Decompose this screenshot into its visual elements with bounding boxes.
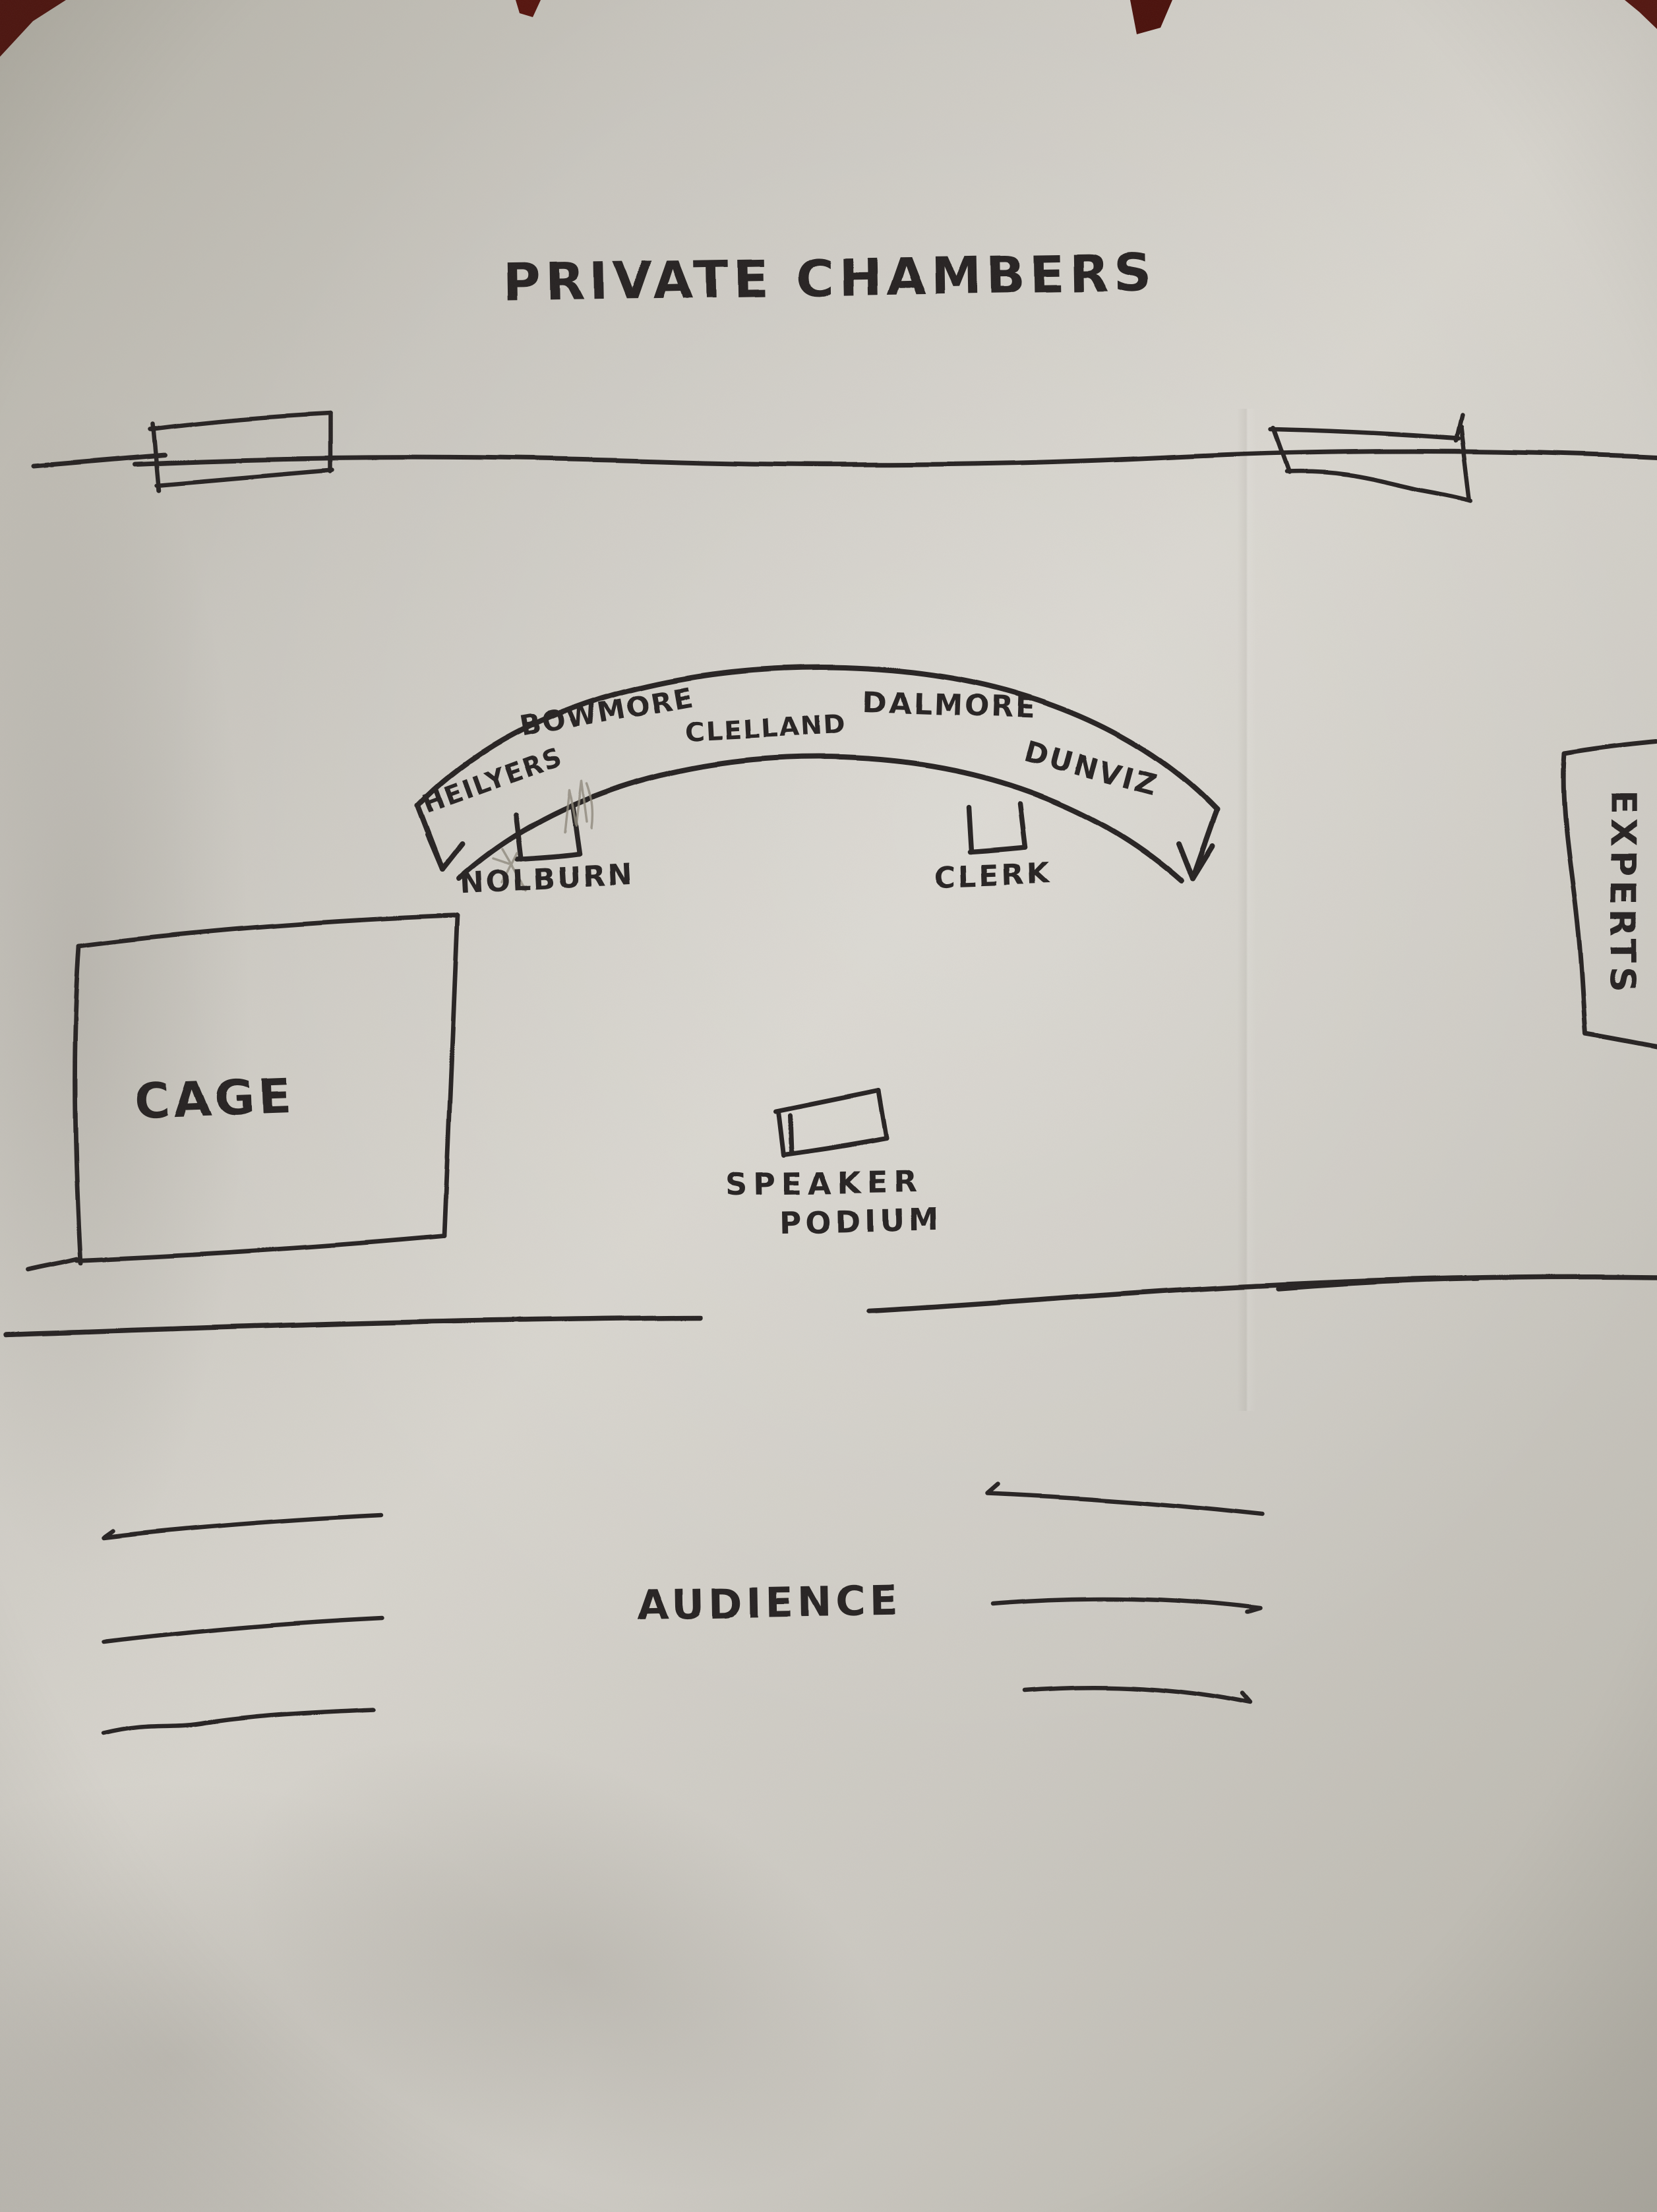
- photo-vignette: [0, 0, 1657, 2212]
- photographed-paper-sketch: PRIVATE CHAMBERS: [0, 0, 1657, 2212]
